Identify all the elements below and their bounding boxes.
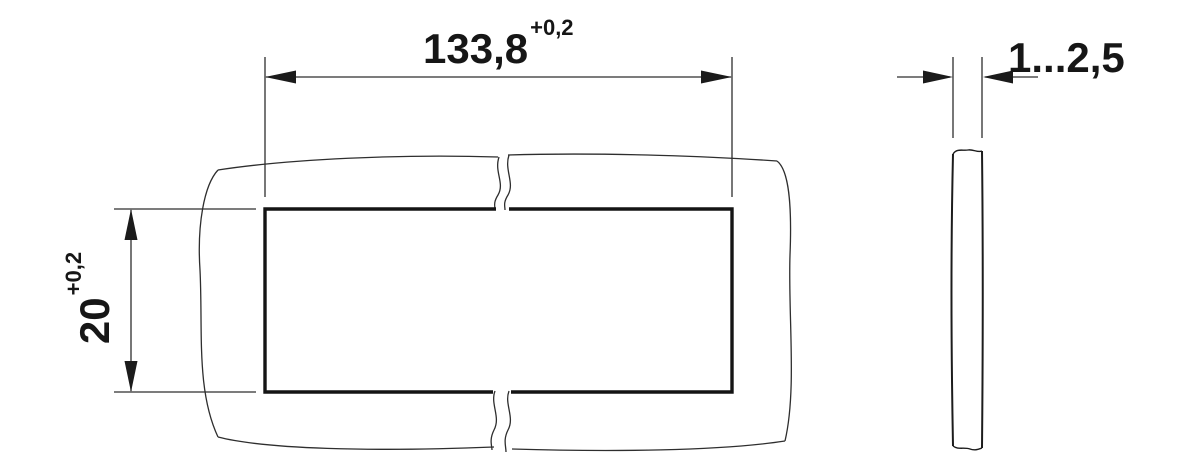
height-arrowhead-bottom: [125, 361, 138, 392]
side-view-right-edge: [982, 151, 983, 448]
break-line-bottom-left: [491, 391, 496, 450]
panel-outline-top-left: [218, 156, 498, 170]
break-line-bottom-right: [505, 391, 510, 452]
break-line-top-right: [505, 155, 511, 210]
break-line-top-left: [495, 157, 501, 210]
panel-cutout-drawing: 133,8+0,2 20+0,2 1...2,5: [0, 0, 1200, 469]
panel-outline-top-right: [508, 154, 777, 161]
width-tolerance: +0,2: [530, 17, 573, 39]
width-value: 133,8: [423, 25, 528, 72]
panel-outline-bottom-right: [512, 441, 785, 450]
side-view-break-top: [953, 150, 982, 154]
panel-outline-bottom-left: [218, 437, 494, 449]
cutout-rectangle-right: [509, 209, 732, 392]
thickness-value: 1...2,5: [1008, 34, 1125, 81]
height-value: 20: [71, 297, 118, 344]
panel-outline-right: [777, 161, 791, 441]
width-arrowhead-left: [265, 71, 296, 84]
height-tolerance: +0,2: [63, 252, 85, 295]
thickness-arrowhead-left: [923, 71, 953, 84]
height-arrowhead-top: [125, 209, 138, 240]
height-dimension-label: 20+0,2: [74, 248, 116, 348]
side-view-left-edge: [952, 154, 954, 446]
side-view-break-bottom: [953, 446, 982, 450]
panel-outline-left: [199, 170, 218, 437]
side-view: [952, 150, 983, 450]
width-arrowhead-right: [701, 71, 732, 84]
width-dimension-label: 133,8+0,2: [423, 28, 574, 70]
front-view: [199, 154, 791, 452]
cutout-rectangle-left: [265, 209, 496, 392]
thickness-dimension-label: 1...2,5: [1008, 37, 1125, 79]
height-dimension: [114, 209, 256, 392]
